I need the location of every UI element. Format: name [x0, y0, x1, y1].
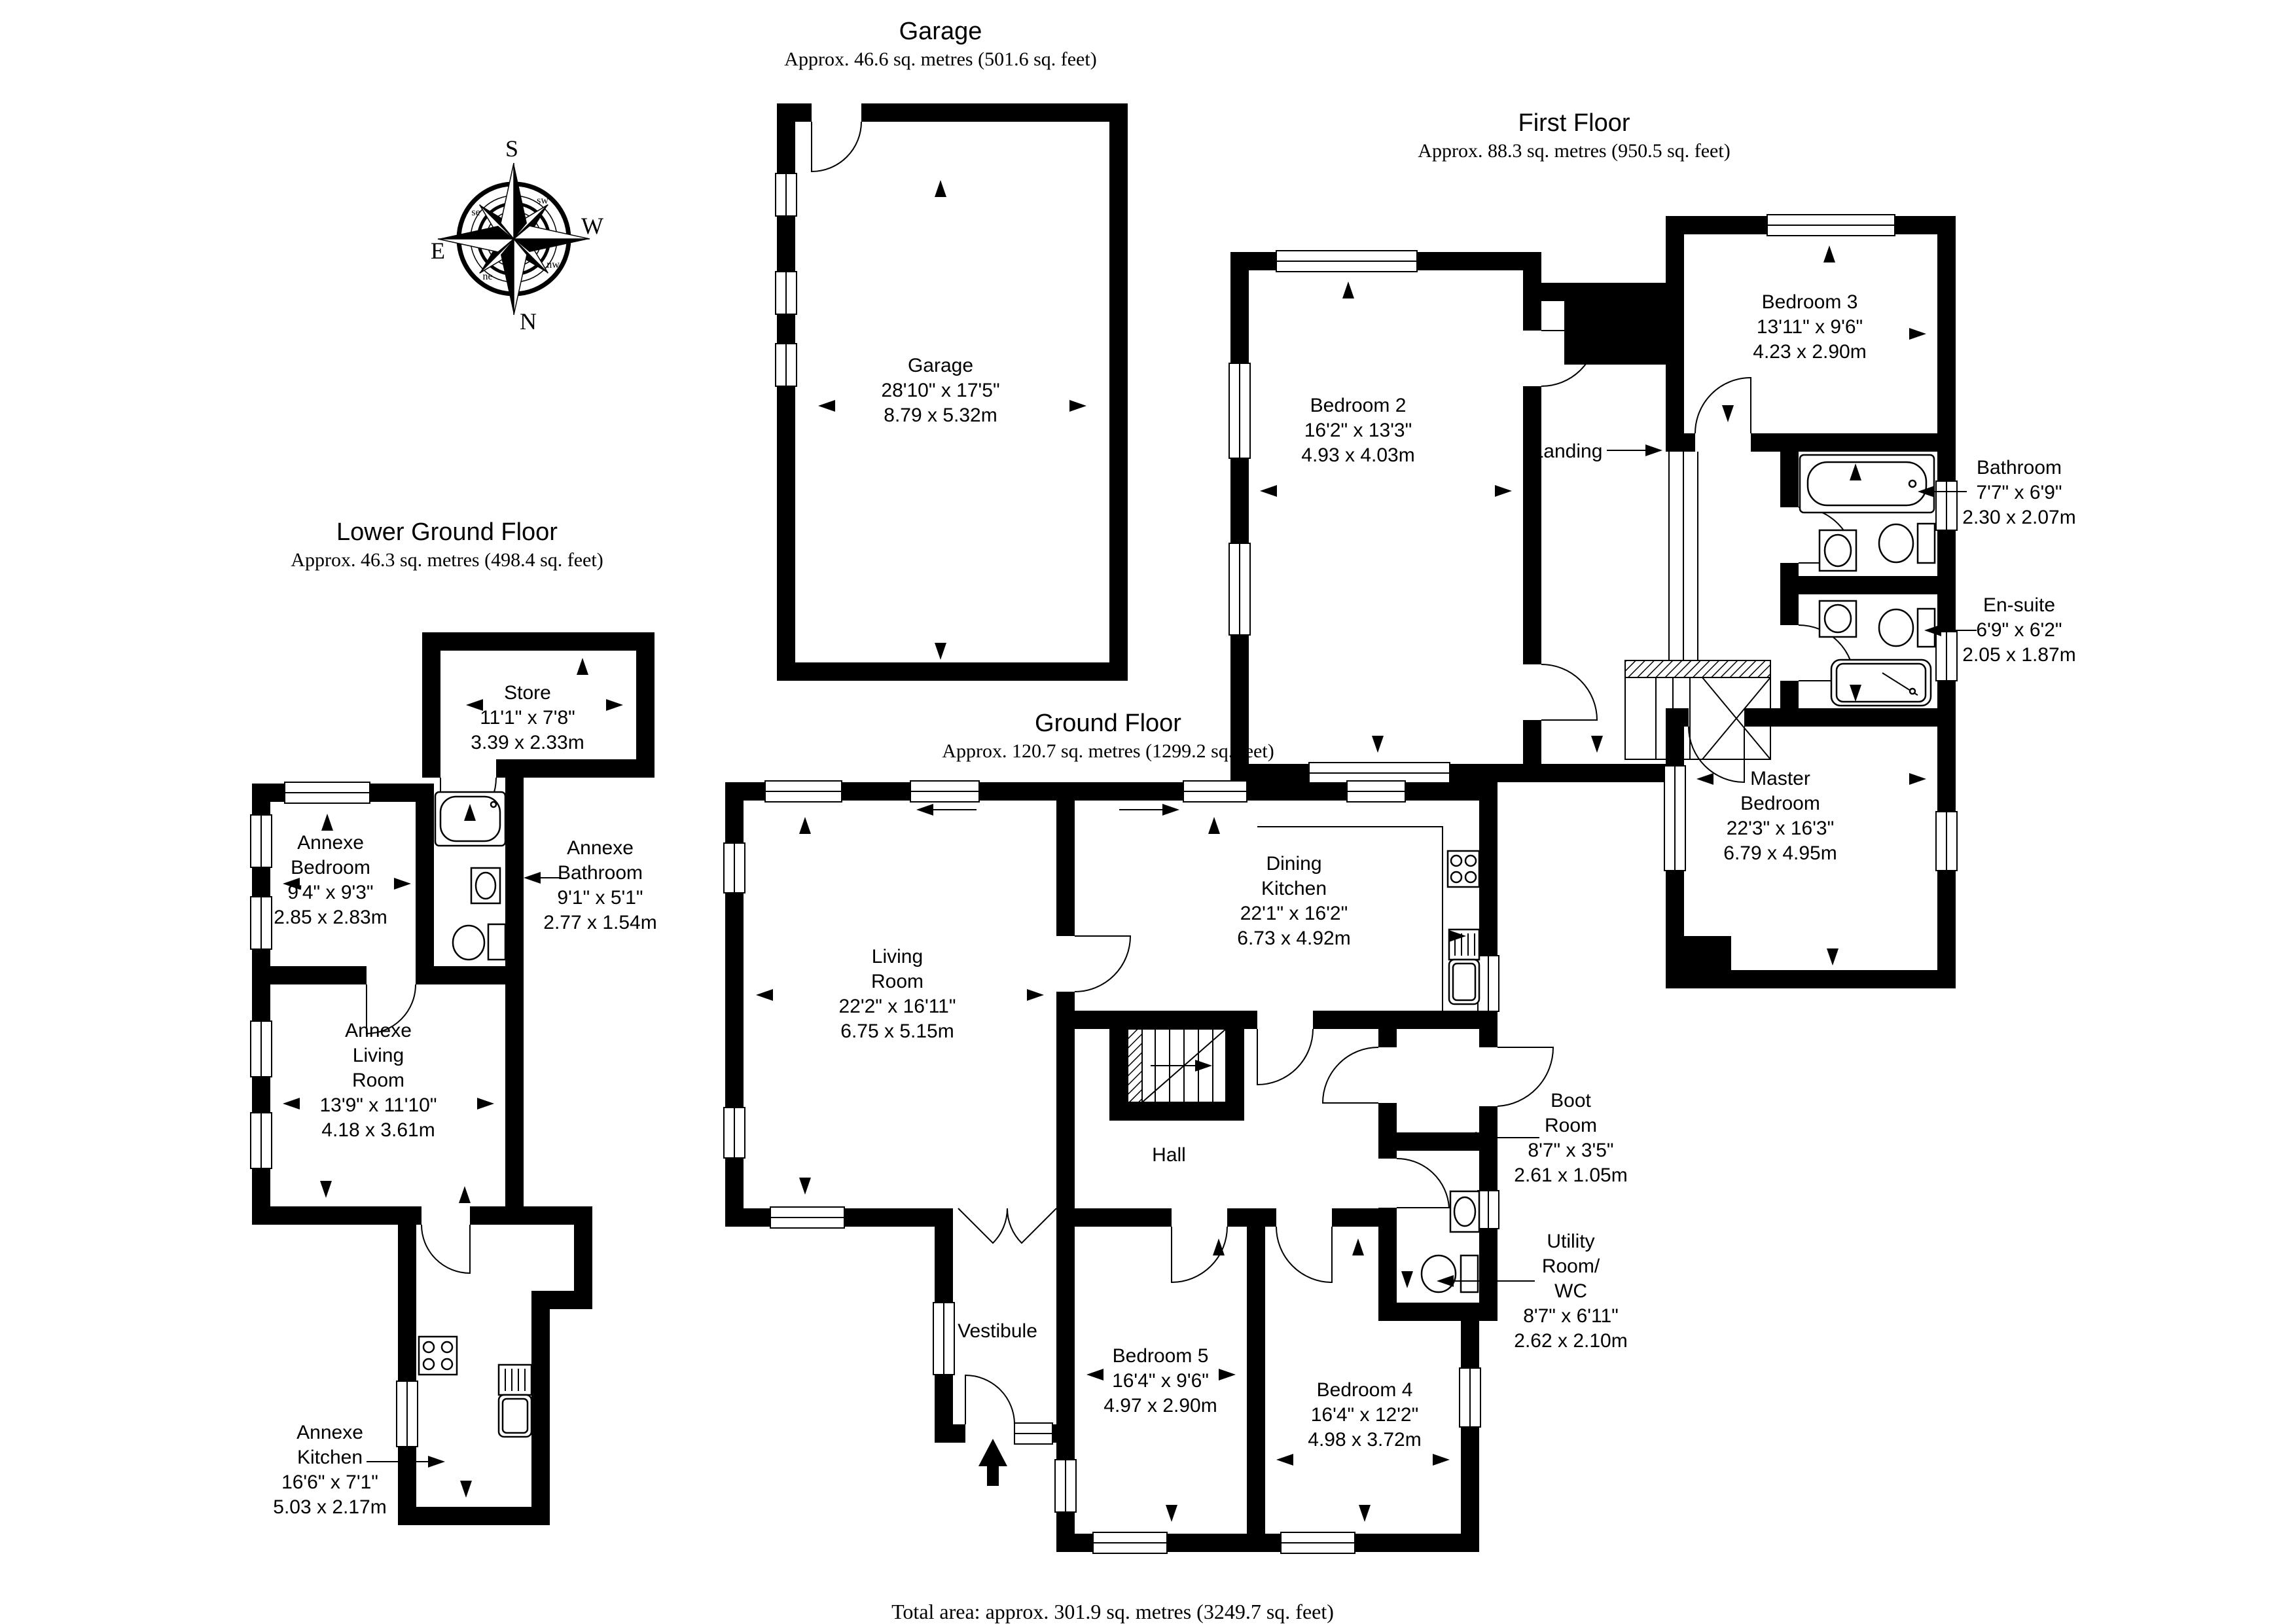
garage-windows — [776, 173, 797, 386]
compass-west-label: W — [581, 213, 603, 239]
room-imperial: 16'4" x 12'2" — [1308, 1403, 1421, 1428]
room-label-bedroom-3: Bedroom 3 13'11" x 9'6" 4.23 x 2.90m — [1753, 290, 1866, 365]
room-imperial: 9'4" x 9'3" — [274, 880, 387, 905]
kitchen-sink-icon — [1449, 929, 1479, 1004]
room-metric: 4.98 x 3.72m — [1308, 1428, 1421, 1453]
room-metric: 2.77 x 1.54m — [543, 911, 656, 935]
room-metric: 2.30 x 2.07m — [1962, 505, 2075, 530]
hob-icon — [1448, 851, 1479, 887]
room-metric: 2.05 x 1.87m — [1962, 643, 2075, 668]
room-metric: 2.85 x 2.83m — [274, 905, 387, 930]
room-label-vestibule: Vestibule — [958, 1319, 1037, 1344]
room-name: Bedroom 3 — [1753, 290, 1866, 315]
floorplan-page: { "colors": {"ink": "#000000", "backgrou… — [0, 0, 2296, 1623]
annexe-hob-icon — [419, 1337, 457, 1375]
room-name: Master Bedroom — [1734, 767, 1826, 816]
room-label-master-bedroom: Master Bedroom 22'3" x 16'3" 6.79 x 4.95… — [1723, 767, 1837, 866]
room-name: Annexe Living Room — [341, 1019, 416, 1093]
compass-sw-label: sw — [537, 195, 548, 206]
room-imperial: 28'10" x 17'5" — [881, 378, 999, 403]
entrance-arrow — [978, 1439, 1007, 1486]
room-name: Living Room — [860, 945, 935, 994]
room-label-annexe-kitchen: Annexe Kitchen 16'6" x 7'1" 5.03 x 2.17m — [273, 1420, 386, 1520]
room-metric: 4.93 x 4.03m — [1301, 443, 1414, 468]
lower-ground-title: Lower Ground Floor Approx. 46.3 sq. metr… — [291, 517, 603, 573]
room-label-annexe-bathroom: Annexe Bathroom 9'1" x 5'1" 2.77 x 1.54m — [543, 836, 656, 935]
room-name: Utility Room/ WC — [1537, 1229, 1605, 1304]
room-label-utility-room-wc: Utility Room/ WC 8'7" x 6'11" 2.62 x 2.1… — [1514, 1229, 1627, 1354]
room-metric: 6.73 x 4.92m — [1237, 926, 1350, 951]
lower-ground-title-text: Lower Ground Floor — [291, 517, 603, 547]
room-name: Annexe Bathroom — [551, 836, 649, 886]
window-span-arrows — [916, 804, 1179, 816]
room-imperial: 7'7" x 6'9" — [1962, 480, 2075, 505]
room-name: Bathroom — [1962, 456, 2075, 480]
utility-sink-icon — [1450, 1191, 1479, 1232]
room-imperial: 22'1" x 16'2" — [1237, 901, 1350, 926]
room-name: Garage — [881, 353, 999, 378]
room-label-annexe-living-room: Annexe Living Room 13'9" x 11'10" 4.18 x… — [320, 1019, 437, 1143]
toilet-icon — [1879, 524, 1935, 563]
room-imperial: 16'4" x 9'6" — [1103, 1369, 1217, 1394]
room-imperial: 16'6" x 7'1" — [273, 1470, 386, 1495]
first-floor-title-text: First Floor — [1418, 108, 1730, 138]
room-metric: 5.03 x 2.17m — [273, 1495, 386, 1520]
lower-ground-floorplan — [251, 632, 655, 1525]
garage-title: Garage Approx. 46.6 sq. metres (501.6 sq… — [784, 16, 1096, 73]
room-name: Bedroom 4 — [1308, 1378, 1421, 1403]
room-label-bathroom: Bathroom 7'7" x 6'9" 2.30 x 2.07m — [1962, 456, 2075, 530]
room-imperial: 8'7" x 3'5" — [1514, 1138, 1627, 1163]
room-metric: 8.79 x 5.32m — [881, 403, 999, 428]
room-metric: 4.18 x 3.61m — [320, 1118, 437, 1143]
room-label-bedroom-4: Bedroom 4 16'4" x 12'2" 4.98 x 3.72m — [1308, 1378, 1421, 1453]
ground-floor-title: Ground Floor Approx. 120.7 sq. metres (1… — [942, 708, 1274, 765]
sink-icon — [1820, 530, 1856, 571]
room-label-ensuite: En-suite 6'9" x 6'2" 2.05 x 1.87m — [1962, 593, 2075, 668]
room-imperial: 22'2" x 16'11" — [839, 994, 956, 1019]
room-name: Annexe Bedroom — [281, 831, 380, 880]
room-label-living-room: Living Room 22'2" x 16'11" 6.75 x 5.15m — [839, 945, 956, 1044]
room-metric: 2.61 x 1.05m — [1514, 1163, 1627, 1188]
shower-icon — [1831, 660, 1931, 706]
annexe-kitchen-sink-icon — [499, 1365, 531, 1437]
compass-se-label: se — [471, 207, 480, 218]
room-metric: 6.79 x 4.95m — [1723, 841, 1837, 866]
room-name: Annexe Kitchen — [287, 1420, 372, 1470]
garage-area-text: Approx. 46.6 sq. metres (501.6 sq. feet) — [784, 46, 1096, 73]
room-imperial: 13'11" x 9'6" — [1753, 315, 1866, 340]
room-label-bedroom-5: Bedroom 5 16'4" x 9'6" 4.97 x 2.90m — [1103, 1344, 1217, 1418]
room-imperial: 6'9" x 6'2" — [1962, 618, 2075, 643]
room-metric: 2.62 x 2.10m — [1514, 1329, 1627, 1354]
lower-ground-area-text: Approx. 46.3 sq. metres (498.4 sq. feet) — [291, 547, 603, 573]
room-label-annexe-bedroom: Annexe Bedroom 9'4" x 9'3" 2.85 x 2.83m — [274, 831, 387, 930]
ensuite-sink-icon — [1820, 601, 1856, 637]
compass-main-points — [438, 163, 590, 315]
room-label-landing: Landing — [1533, 439, 1603, 464]
room-imperial: 16'2" x 13'3" — [1301, 418, 1414, 443]
compass-rose: S N E W sw se ne nw — [431, 135, 603, 334]
annexe-toilet-icon — [453, 924, 505, 960]
compass-ne-label: ne — [482, 271, 492, 282]
room-label-hall: Hall — [1152, 1143, 1186, 1168]
ground-floor-title-text: Ground Floor — [942, 708, 1274, 738]
room-metric: 4.97 x 2.90m — [1103, 1394, 1217, 1418]
utility-toilet-icon — [1422, 1255, 1478, 1292]
garage-door-arc — [812, 122, 861, 171]
room-name: Bedroom 5 — [1103, 1344, 1217, 1369]
room-label-garage: Garage 28'10" x 17'5" 8.79 x 5.32m — [881, 353, 999, 428]
room-name: Boot Room — [1540, 1089, 1602, 1138]
room-name: Landing — [1533, 439, 1603, 464]
room-metric: 4.23 x 2.90m — [1753, 340, 1866, 365]
room-imperial: 13'9" x 11'10" — [320, 1093, 437, 1118]
ground-floor-area-text: Approx. 120.7 sq. metres (1299.2 sq. fee… — [942, 738, 1274, 765]
compass-south-label: S — [505, 135, 518, 162]
room-metric: 6.75 x 5.15m — [839, 1019, 956, 1044]
compass-north-label: N — [520, 308, 537, 334]
room-imperial: 11'1" x 7'8" — [471, 706, 584, 731]
room-imperial: 22'3" x 16'3" — [1723, 816, 1837, 841]
compass-east-label: E — [431, 238, 445, 264]
ground-stairs — [1128, 1029, 1226, 1102]
room-name: Bedroom 2 — [1301, 393, 1414, 418]
room-label-bedroom-2: Bedroom 2 16'2" x 13'3" 4.93 x 4.03m — [1301, 393, 1414, 468]
lower-ground-walls — [252, 632, 655, 1525]
ensuite-toilet-icon — [1879, 609, 1935, 647]
first-floor-area-text: Approx. 88.3 sq. metres (950.5 sq. feet) — [1418, 138, 1730, 164]
first-floor-title: First Floor Approx. 88.3 sq. metres (950… — [1418, 108, 1730, 164]
bath-icon — [1800, 455, 1934, 513]
room-name: Hall — [1152, 1143, 1186, 1168]
room-label-boot-room: Boot Room 8'7" x 3'5" 2.61 x 1.05m — [1514, 1089, 1627, 1188]
room-name: Dining Kitchen — [1253, 852, 1335, 901]
ground-floorplan — [724, 781, 1553, 1553]
room-imperial: 8'7" x 6'11" — [1514, 1304, 1627, 1329]
garage-title-text: Garage — [784, 16, 1096, 46]
room-name: Vestibule — [958, 1319, 1037, 1344]
room-name: Store — [471, 681, 584, 706]
room-label-store: Store 11'1" x 7'8" 3.39 x 2.33m — [471, 681, 584, 755]
annexe-sink-icon — [471, 868, 500, 903]
room-name: En-suite — [1962, 593, 2075, 618]
room-imperial: 9'1" x 5'1" — [543, 886, 656, 911]
room-label-dining-kitchen: Dining Kitchen 22'1" x 16'2" 6.73 x 4.92… — [1237, 852, 1350, 951]
room-metric: 3.39 x 2.33m — [471, 731, 584, 755]
compass-nw-label: nw — [547, 259, 560, 270]
total-area-text: Total area: approx. 301.9 sq. metres (32… — [891, 1600, 1334, 1624]
